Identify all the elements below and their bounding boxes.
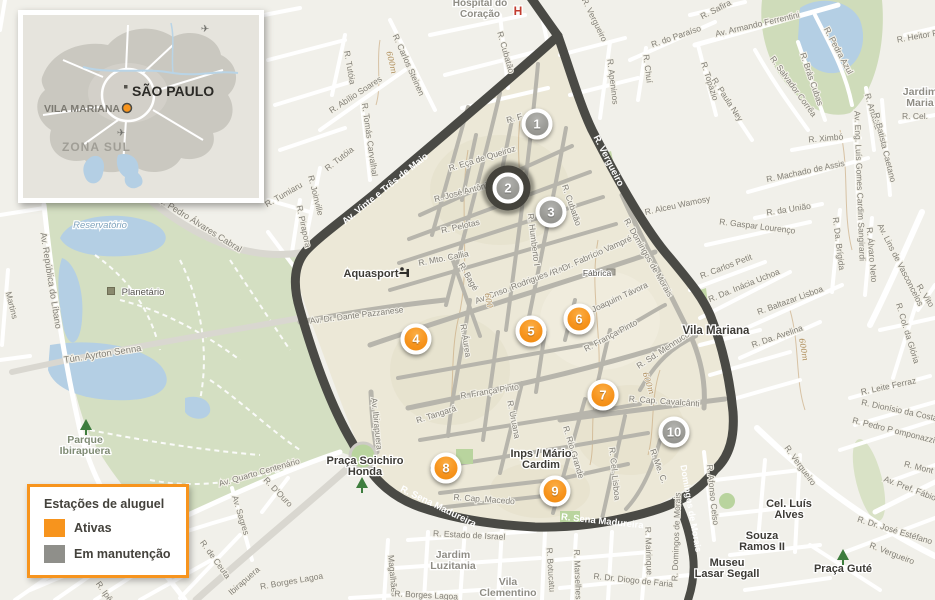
inset-map: ✈✈ SÃO PAULO VILA MARIANA ZONA SUL bbox=[18, 10, 264, 203]
legend-title: Estações de aluguel bbox=[44, 497, 172, 511]
legend-item-label: Em manutenção bbox=[74, 547, 171, 561]
place-label: Planetário bbox=[122, 287, 165, 298]
station-marker-1[interactable]: 1 bbox=[522, 109, 553, 140]
airplane-icon: ✈ bbox=[201, 24, 209, 35]
svg-text:✈: ✈ bbox=[117, 128, 125, 139]
place-label: Fábrica bbox=[583, 268, 612, 278]
legend: Estações de aluguel Ativas Em manutenção bbox=[27, 484, 189, 578]
place-label: Aquasport bbox=[344, 268, 399, 280]
place-label: H bbox=[514, 4, 523, 18]
airplane-icon: ✈ bbox=[117, 128, 125, 139]
place-label: SouzaRamos II bbox=[739, 530, 785, 553]
place-label: JardimLuzitania bbox=[430, 549, 476, 572]
place-label: Reservatório bbox=[73, 220, 127, 231]
inset-district-label: VILA MARIANA bbox=[44, 103, 120, 115]
legend-item-em-manutencao: Em manutenção bbox=[44, 545, 172, 563]
street-label: R. Marselhesa bbox=[572, 549, 584, 600]
svg-text:✈: ✈ bbox=[201, 24, 209, 35]
station-marker-5[interactable]: 5 bbox=[516, 316, 547, 347]
district-dot bbox=[123, 104, 132, 113]
street-label: R. Mairinque bbox=[643, 527, 655, 576]
legend-item-ativas: Ativas bbox=[44, 519, 172, 537]
station-marker-8[interactable]: 8 bbox=[431, 453, 462, 484]
station-marker-6[interactable]: 6 bbox=[564, 304, 595, 335]
map-viewport[interactable]: R. TutóiaR. Carlos SteinenR. Abílio Soar… bbox=[0, 0, 935, 600]
station-marker-7[interactable]: 7 bbox=[588, 380, 619, 411]
station-marker-4[interactable]: 4 bbox=[401, 324, 432, 355]
inset-city-label: SÃO PAULO bbox=[132, 82, 214, 99]
station-marker-10[interactable]: 10 bbox=[659, 417, 690, 448]
station-marker-3[interactable]: 3 bbox=[536, 197, 567, 228]
street-label: R. Cel. bbox=[902, 111, 928, 121]
active-swatch-icon bbox=[44, 519, 65, 537]
place-label: Vila Mariana bbox=[683, 325, 751, 337]
maintenance-swatch-icon bbox=[44, 545, 65, 563]
place-label: Praça Guté bbox=[814, 563, 872, 575]
planetarium-icon bbox=[108, 288, 115, 295]
station-marker-9[interactable]: 9 bbox=[540, 476, 571, 507]
legend-item-label: Ativas bbox=[74, 521, 112, 535]
station-marker-2[interactable]: 2 bbox=[493, 173, 524, 204]
city-dot bbox=[124, 85, 128, 89]
inset-zone-label: ZONA SUL bbox=[62, 140, 131, 154]
place-label: Hospital doCoração bbox=[453, 0, 507, 20]
place-label: JardimMaria bbox=[903, 86, 935, 109]
